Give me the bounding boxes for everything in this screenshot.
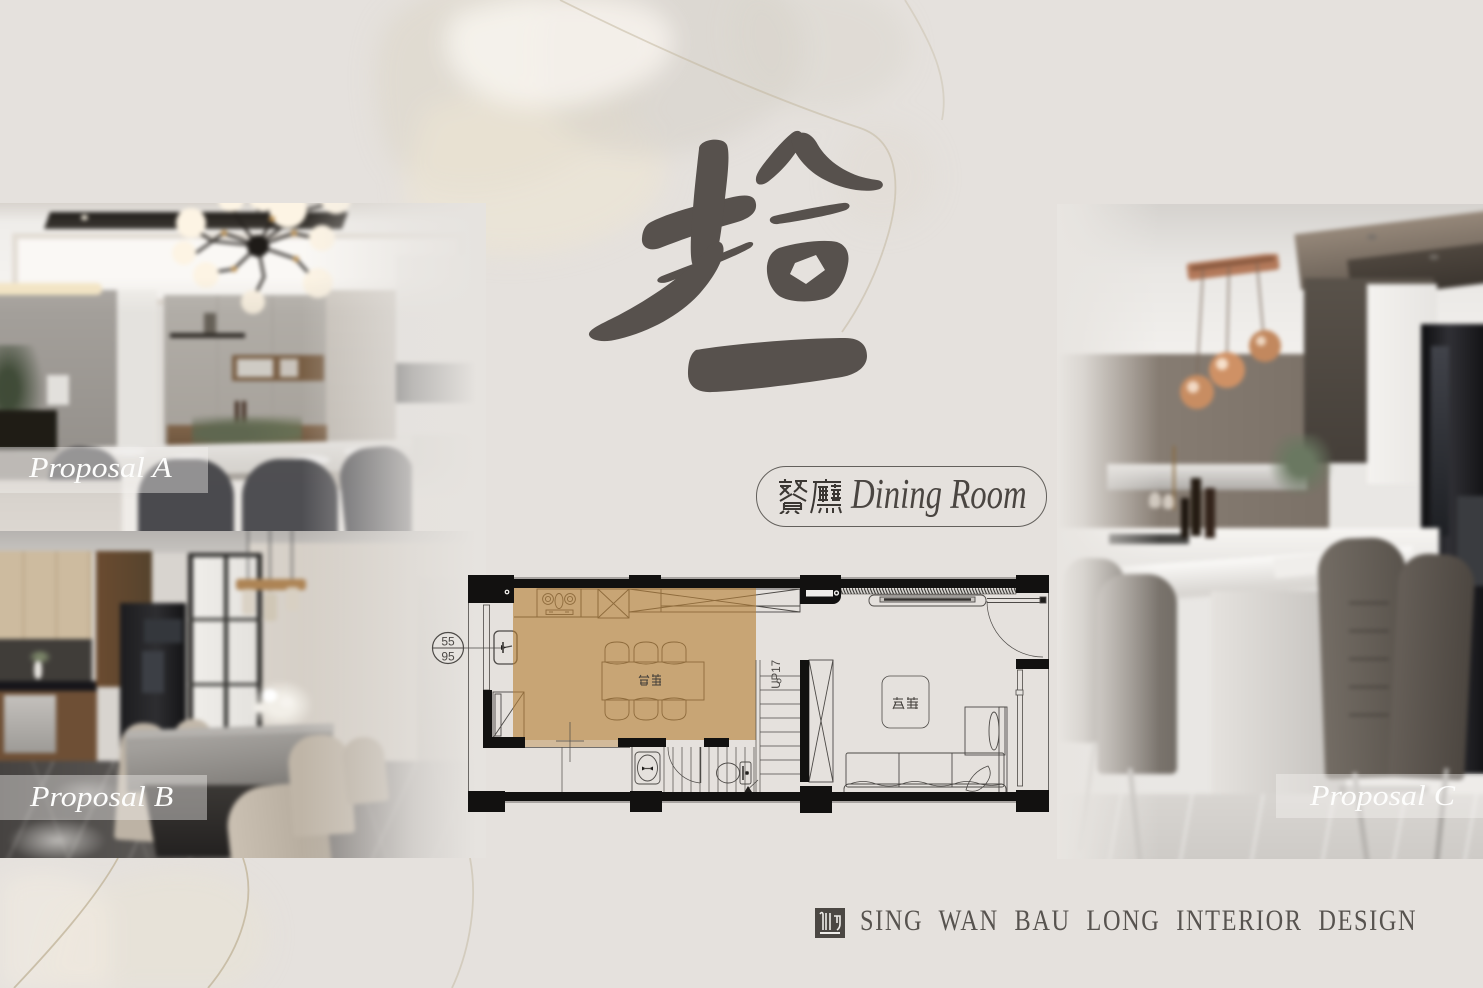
- svg-text:95: 95: [441, 650, 455, 664]
- svg-text:55: 55: [441, 635, 455, 649]
- svg-text:UP17: UP17: [771, 660, 783, 689]
